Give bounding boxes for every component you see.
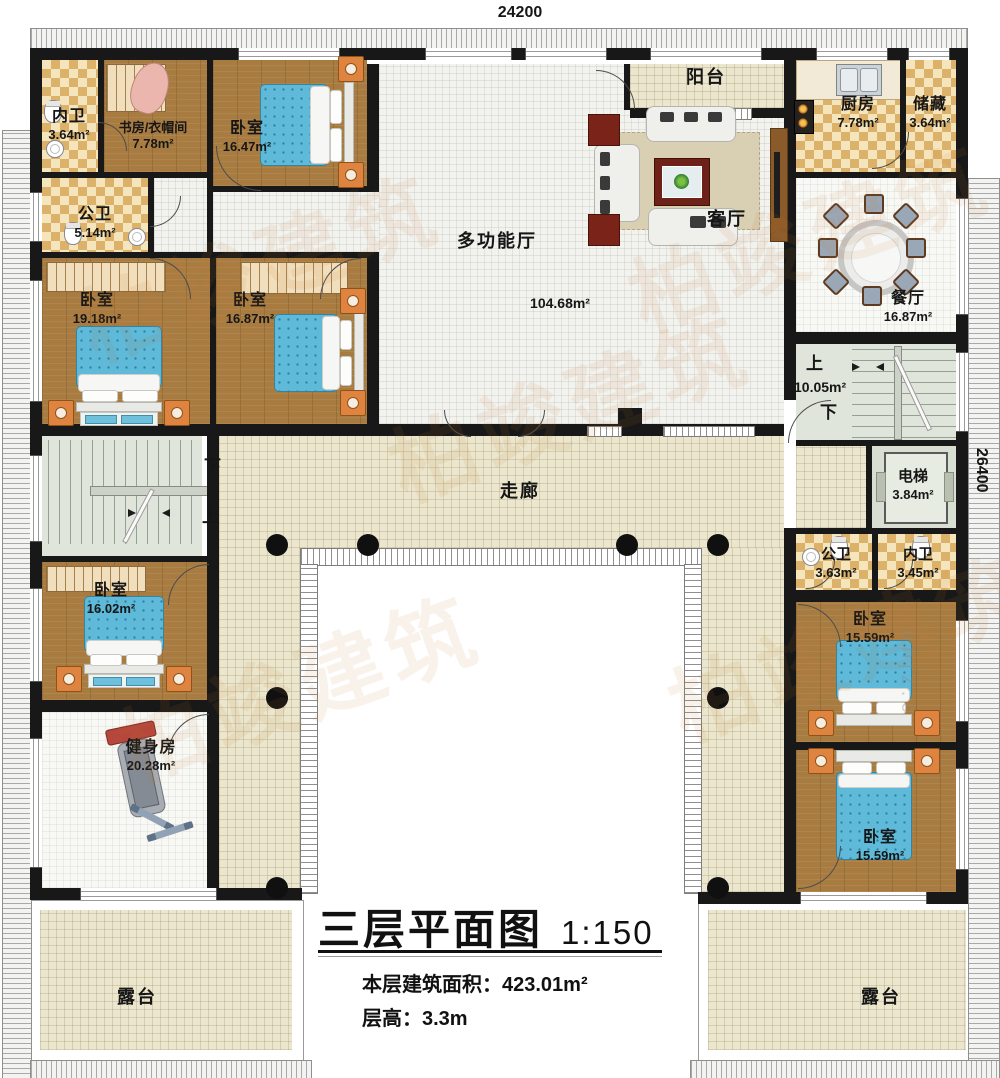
room-label-multi-hall-area: 104.68m² [520,295,600,311]
floor-plan: 内卫 3.64m² 书房/衣帽间 7.78m² 卧室 16.47m² 公卫 5.… [0,0,1000,1078]
window [30,455,42,542]
eave-bottom-right [690,1060,1000,1078]
nightstand [914,710,940,736]
wall [42,556,207,562]
floor-height-label: 层高： [362,1002,422,1031]
sofa-cushion [600,176,610,190]
bed [72,326,164,426]
wall [207,60,213,252]
window [956,352,968,432]
dining-chair [864,194,884,214]
room-label-elevator: 电梯 3.84m² [880,468,946,503]
wall [42,172,207,178]
wall [210,258,216,424]
title-underline-thin [318,956,662,957]
window [30,738,42,868]
stairs-left-arrow [162,509,170,517]
wall [367,64,379,192]
eave-top [30,28,968,50]
room-label-bedroom-16-02: 卧室 16.02m² [66,581,156,617]
room-label-bedroom-r2: 卧室 15.59m² [835,828,925,864]
room-label-terrace-right: 露台 [851,986,911,1009]
nightstand [914,748,940,774]
room-label-bedroom-16-47: 卧室 16.47m² [202,119,292,155]
stove-burner [798,104,808,114]
room-label-balcony: 阳台 [676,66,736,89]
window [908,48,950,60]
wall [98,60,104,172]
corridor-left [219,548,300,892]
side-table [588,114,620,146]
column [707,877,729,899]
eave-bottom-left [30,1060,312,1078]
room-label-terrace-left: 露台 [107,986,167,1009]
wall [750,108,784,118]
room-label-study: 书房/衣帽间 7.78m² [100,120,206,153]
stairs-right-down-label: 下 [820,398,837,423]
floor-height-line: 层高： 3.3m [362,1002,468,1031]
nightstand [808,710,834,736]
wardrobe [46,262,166,292]
stairs-right-arrow [852,363,860,371]
hall-opening-rail [663,426,755,437]
corridor-right [700,548,784,892]
column [266,877,288,899]
dining-chair [906,238,926,258]
wall [367,252,379,424]
nightstand [808,748,834,774]
room-terrace-left [40,910,292,1050]
column [707,687,729,709]
stairs-left-down-label: 下 [204,452,221,477]
floor-area-label: 本层建筑面积： [362,968,502,997]
stairs-right-up-label: 上 [806,349,823,374]
room-label-bedroom-19-18: 卧室 19.18m² [52,291,142,327]
room-label-gym: 健身房 20.28m² [103,738,199,774]
nightstand [338,56,364,82]
wall [784,590,956,602]
window [816,48,888,60]
central-void [300,548,700,1078]
stairs-right-arrow [876,363,884,371]
column [707,534,729,556]
window [800,892,927,904]
wall [784,534,796,892]
floor-area-value: 423.01m² [502,974,588,997]
room-label-public-bath-3-63: 公卫 3.63m² [794,546,878,581]
sofa-cushion [660,112,674,122]
bed [834,640,914,736]
room-label-inner-bath-3-45: 内卫 3.45m² [876,546,960,581]
column [266,687,288,709]
tv [774,152,780,218]
wall [784,528,956,534]
stairs-left-up-label: 上 [202,502,219,527]
window [425,48,512,60]
dimension-top: 24200 [480,4,560,22]
room-terrace-right [708,910,966,1050]
window [956,620,968,722]
window [650,48,762,60]
nightstand [166,666,192,692]
dimension-right: 26400 [972,448,990,493]
room-label-storage: 储藏 3.64m² [900,95,960,131]
elevator-lobby [796,446,866,528]
window [30,280,42,402]
room-label-bedroom-16-87: 卧室 16.87m² [205,291,295,327]
wall [42,700,207,712]
nightstand [48,400,74,426]
nightstand [164,400,190,426]
column [357,534,379,556]
void-railing-left [300,564,318,894]
window [80,888,217,900]
nightstand [338,162,364,188]
eave-left [2,130,32,1078]
window [30,192,42,242]
window [956,198,968,315]
stairs-left-arrow [128,509,136,517]
sofa-cushion [708,112,722,122]
room-label-kitchen: 厨房 7.78m² [816,95,900,131]
stove-burner [798,118,808,128]
nightstand [56,666,82,692]
room-label-public-bath-5-14: 公卫 5.14m² [50,205,140,241]
title-scale: 1:150 [561,914,654,952]
void-railing-right [684,564,702,894]
column [266,534,288,556]
window [238,48,340,60]
window [956,768,968,870]
dining-chair [818,238,838,258]
sofa-cushion [684,112,698,122]
floor-area-line: 本层建筑面积： 423.01m² [362,968,588,997]
room-label-inner-bath-tl: 内卫 3.64m² [40,107,98,143]
wall [42,252,367,258]
sofa-cushion [600,200,610,214]
sofa-cushion [600,152,610,166]
room-label-corridor: 走廊 [488,480,552,503]
floor-height-value: 3.3m [422,1008,468,1031]
wall [796,172,956,178]
room-label-living: 客厅 [695,208,759,231]
column [616,534,638,556]
window [525,48,607,60]
stairs-right-treads [852,346,956,438]
room-label-bedroom-r1: 卧室 15.59m² [825,610,915,646]
passage [213,192,379,252]
sink-bowl [840,68,858,92]
nightstand [340,390,366,416]
plant [674,174,689,189]
page-title: 三层平面图 [318,896,543,957]
room-label-dining: 餐厅 16.87m² [863,289,953,325]
title-block: 三层平面图 1:150 [318,896,654,957]
window [30,588,42,682]
side-table [588,214,620,246]
eave-right [968,178,1000,1078]
stairs-right-area: 10.05m² [794,379,852,395]
hall-opening-rail [587,426,622,437]
title-underline [318,950,662,953]
sink-bowl [860,68,878,92]
wall [784,332,956,344]
room-label-multi-hall: 多功能厅 [447,230,547,253]
wall [866,446,872,528]
